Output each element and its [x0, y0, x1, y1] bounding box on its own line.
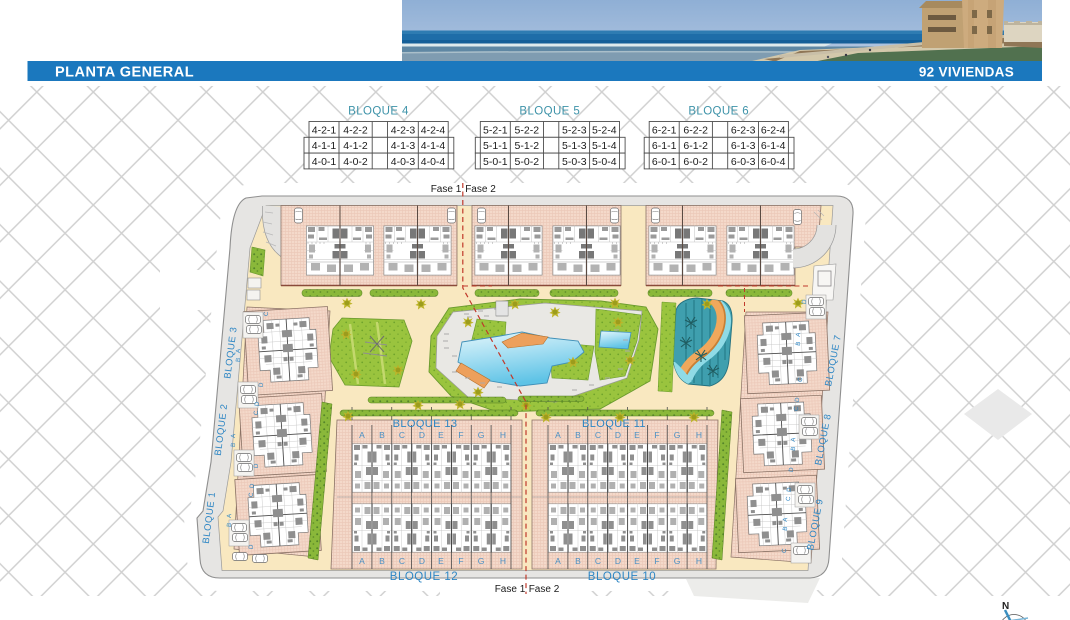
svg-text:C: C	[595, 556, 601, 566]
svg-text:H: H	[500, 556, 506, 566]
svg-text:C: C	[399, 556, 405, 566]
svg-text:G: G	[674, 430, 681, 440]
svg-text:5-2-3: 5-2-3	[562, 124, 587, 136]
svg-text:B: B	[226, 523, 233, 528]
svg-text:B: B	[575, 430, 581, 440]
svg-text:F: F	[654, 556, 659, 566]
svg-text:6-1-1: 6-1-1	[652, 140, 677, 152]
svg-text:G: G	[478, 556, 485, 566]
svg-text:B: B	[379, 430, 385, 440]
svg-text:5-1-4: 5-1-4	[592, 140, 617, 152]
svg-text:F: F	[458, 556, 463, 566]
svg-text:Fase 2: Fase 2	[465, 184, 496, 195]
svg-text:6-1-3: 6-1-3	[731, 140, 756, 152]
svg-text:Fase 1: Fase 1	[431, 184, 462, 195]
svg-text:4-2-3: 4-2-3	[391, 124, 416, 136]
svg-text:F: F	[458, 430, 463, 440]
svg-text:5-1-3: 5-1-3	[562, 140, 587, 152]
svg-text:5-1-2: 5-1-2	[515, 140, 540, 152]
svg-text:4-2-2: 4-2-2	[343, 124, 368, 136]
svg-text:BLOQUE 6: BLOQUE 6	[688, 106, 749, 118]
svg-text:BLOQUE 11: BLOQUE 11	[582, 418, 646, 430]
svg-text:E: E	[438, 430, 444, 440]
svg-text:6-1-4: 6-1-4	[761, 140, 786, 152]
svg-text:B: B	[230, 443, 237, 448]
svg-text:D: D	[615, 556, 621, 566]
svg-text:6-2-2: 6-2-2	[683, 124, 708, 136]
svg-text:92 VIVIENDAS: 92 VIVIENDAS	[919, 65, 1014, 80]
svg-text:E: E	[634, 430, 640, 440]
svg-text:G: G	[478, 430, 485, 440]
svg-text:C: C	[399, 430, 405, 440]
svg-text:4-1-1: 4-1-1	[312, 140, 337, 152]
svg-text:BLOQUE 10: BLOQUE 10	[588, 571, 656, 583]
svg-text:H: H	[696, 430, 702, 440]
svg-text:F: F	[654, 430, 659, 440]
svg-text:H: H	[500, 430, 506, 440]
svg-text:4-2-4: 4-2-4	[421, 124, 446, 136]
svg-text:6-0-2: 6-0-2	[683, 156, 708, 168]
svg-text:BLOQUE 12: BLOQUE 12	[390, 571, 458, 583]
svg-text:4-1-2: 4-1-2	[343, 140, 368, 152]
svg-text:E: E	[438, 556, 444, 566]
svg-text:A: A	[359, 430, 365, 440]
svg-text:4-1-3: 4-1-3	[391, 140, 416, 152]
svg-text:6-2-4: 6-2-4	[761, 124, 786, 136]
svg-text:A: A	[359, 556, 365, 566]
svg-text:4-0-3: 4-0-3	[391, 156, 416, 168]
svg-text:5-1-1: 5-1-1	[483, 140, 508, 152]
svg-text:5-0-1: 5-0-1	[483, 156, 508, 168]
svg-text:A: A	[555, 430, 561, 440]
svg-text:5-0-4: 5-0-4	[592, 156, 617, 168]
svg-text:BLOQUE 4: BLOQUE 4	[348, 106, 409, 118]
svg-text:5-2-2: 5-2-2	[515, 124, 540, 136]
svg-text:6-0-1: 6-0-1	[652, 156, 677, 168]
svg-text:B: B	[575, 556, 581, 566]
svg-text:6-1-2: 6-1-2	[683, 140, 708, 152]
svg-text:6-2-1: 6-2-1	[652, 124, 677, 136]
svg-text:4-0-1: 4-0-1	[312, 156, 337, 168]
svg-text:Fase 1: Fase 1	[495, 584, 526, 595]
svg-text:5-0-2: 5-0-2	[515, 156, 540, 168]
svg-text:B: B	[379, 556, 385, 566]
svg-text:4-2-1: 4-2-1	[312, 124, 337, 136]
svg-text:D: D	[615, 430, 621, 440]
svg-text:BLOQUE 5: BLOQUE 5	[519, 106, 580, 118]
svg-text:5-2-1: 5-2-1	[483, 124, 508, 136]
svg-text:E: E	[634, 556, 640, 566]
svg-text:PLANTA GENERAL: PLANTA GENERAL	[55, 65, 194, 81]
svg-text:Fase 2: Fase 2	[529, 584, 560, 595]
svg-text:5-2-4: 5-2-4	[592, 124, 617, 136]
svg-text:D: D	[419, 556, 425, 566]
svg-text:BLOQUE 13: BLOQUE 13	[393, 418, 458, 430]
svg-text:6-0-4: 6-0-4	[761, 156, 786, 168]
svg-text:6-2-3: 6-2-3	[731, 124, 756, 136]
svg-text:6-0-3: 6-0-3	[731, 156, 756, 168]
svg-text:G: G	[674, 556, 681, 566]
svg-text:A: A	[555, 556, 561, 566]
svg-text:C: C	[595, 430, 601, 440]
svg-text:H: H	[696, 556, 702, 566]
svg-text:4-0-2: 4-0-2	[343, 156, 368, 168]
svg-text:5-0-3: 5-0-3	[562, 156, 587, 168]
svg-text:4-0-4: 4-0-4	[421, 156, 446, 168]
svg-text:4-1-4: 4-1-4	[421, 140, 446, 152]
svg-text:B: B	[235, 358, 242, 363]
svg-text:D: D	[419, 430, 425, 440]
